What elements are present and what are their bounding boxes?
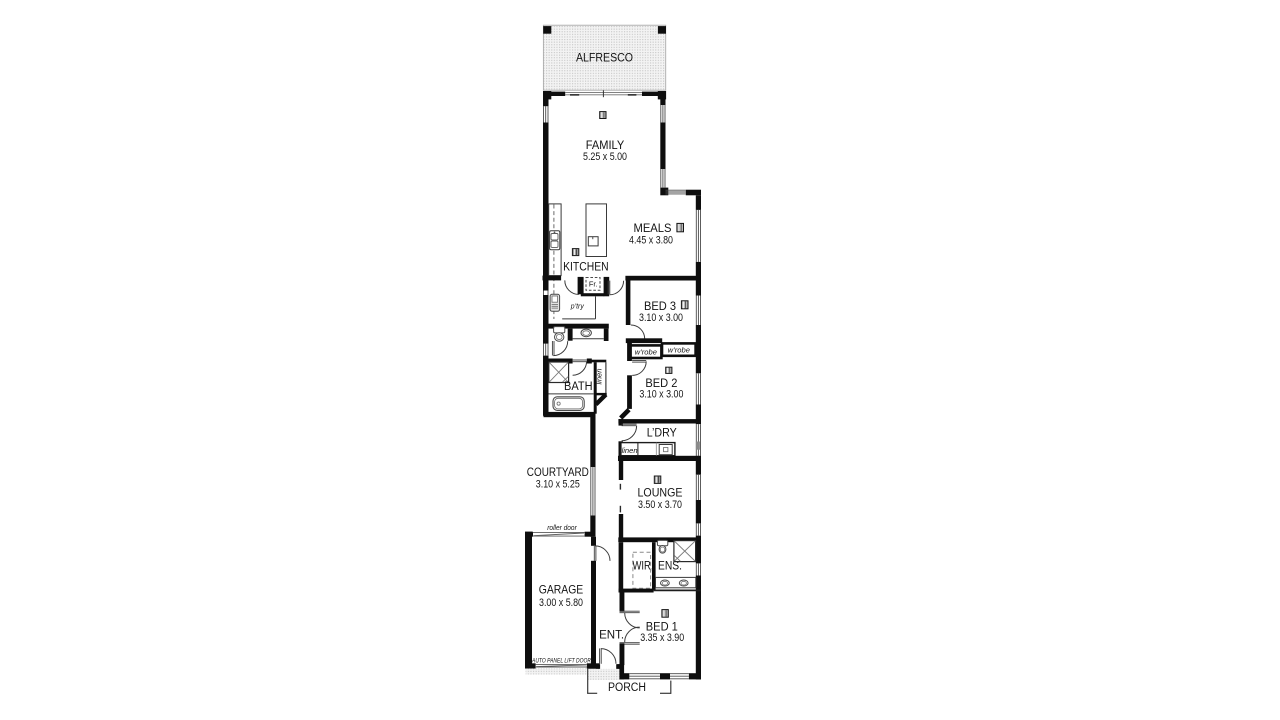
svg-text:KITCHEN: KITCHEN	[563, 259, 609, 273]
svg-text:5.25 x 5.00: 5.25 x 5.00	[583, 151, 627, 163]
svg-text:ENT.: ENT.	[599, 627, 624, 641]
svg-text:GARAGE: GARAGE	[539, 583, 584, 597]
svg-text:3.00 x 5.80: 3.00 x 5.80	[539, 597, 583, 609]
svg-text:w’robe: w’robe	[668, 345, 690, 354]
svg-text:3.50 x 3.70: 3.50 x 3.70	[638, 499, 682, 511]
svg-text:roller door: roller door	[547, 523, 577, 532]
svg-text:L’DRY: L’DRY	[647, 426, 677, 440]
svg-text:AUTO PANEL LIFT DOOR: AUTO PANEL LIFT DOOR	[531, 658, 591, 665]
svg-text:WIR,: WIR,	[633, 559, 654, 573]
svg-text:3.10 x 3.00: 3.10 x 3.00	[639, 312, 683, 324]
svg-text:MEALS: MEALS	[634, 221, 672, 235]
svg-text:linen: linen	[595, 368, 604, 384]
svg-text:p’try: p’try	[570, 301, 585, 310]
svg-text:4.45 x 3.80: 4.45 x 3.80	[629, 235, 673, 247]
svg-text:FAMILY: FAMILY	[586, 138, 625, 152]
svg-text:BATH: BATH	[564, 379, 593, 393]
svg-text:3.10 x 5.25: 3.10 x 5.25	[536, 479, 580, 491]
svg-text:3.35 x 3.90: 3.35 x 3.90	[640, 632, 684, 644]
svg-text:ALFRESCO: ALFRESCO	[576, 51, 633, 65]
svg-text:COURTYARD: COURTYARD	[527, 465, 589, 479]
svg-text:3.10 x 3.00: 3.10 x 3.00	[639, 389, 683, 401]
svg-text:w’robe: w’robe	[635, 348, 657, 357]
svg-text:linen: linen	[622, 446, 638, 455]
svg-text:Fr.: Fr.	[589, 280, 598, 289]
svg-text:PORCH: PORCH	[608, 680, 646, 694]
svg-text:LOUNGE: LOUNGE	[638, 485, 683, 499]
